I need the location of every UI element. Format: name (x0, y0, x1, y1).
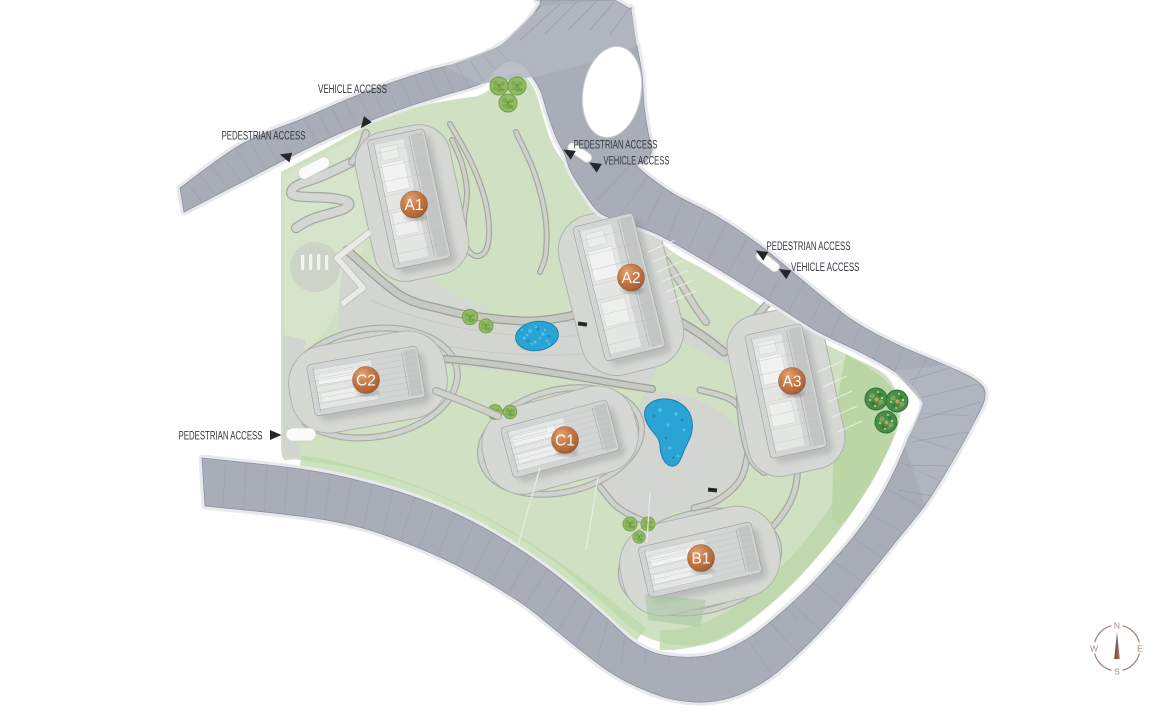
svg-text:S: S (1114, 667, 1120, 677)
svg-text:N: N (1114, 621, 1120, 631)
svg-text:VEHICLE ACCESS: VEHICLE ACCESS (791, 262, 860, 274)
svg-text:E: E (1137, 644, 1143, 654)
svg-text:VEHICLE ACCESS: VEHICLE ACCESS (318, 84, 387, 96)
svg-text:A2: A2 (622, 270, 641, 287)
svg-text:PEDESTRIAN ACCESS: PEDESTRIAN ACCESS (179, 431, 263, 443)
svg-text:A3: A3 (783, 374, 802, 391)
svg-text:B1: B1 (692, 551, 711, 568)
svg-text:W: W (1090, 644, 1098, 654)
svg-text:PEDESTRIAN ACCESS: PEDESTRIAN ACCESS (222, 131, 306, 143)
svg-text:A1: A1 (405, 197, 424, 214)
svg-text:VEHICLE ACCESS: VEHICLE ACCESS (604, 156, 670, 168)
svg-text:C2: C2 (356, 373, 376, 390)
svg-text:PEDESTRIAN ACCESS: PEDESTRIAN ACCESS (767, 241, 851, 253)
svg-text:PEDESTRIAN ACCESS: PEDESTRIAN ACCESS (574, 140, 658, 152)
svg-text:C1: C1 (555, 433, 575, 450)
